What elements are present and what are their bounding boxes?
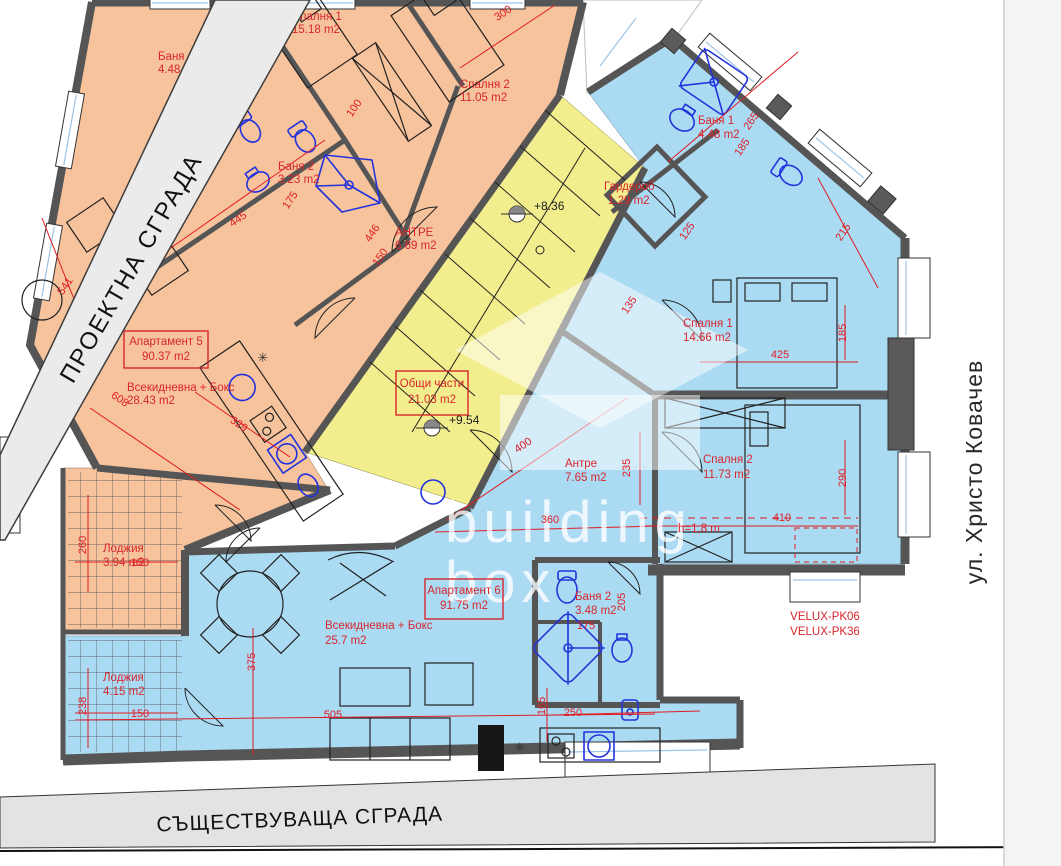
ap5-living-name: Всекидневна + Бокс bbox=[127, 382, 235, 394]
dim-375: 375 bbox=[246, 653, 258, 671]
ap6-lodzhiya-name: Лоджия bbox=[103, 672, 144, 684]
elevation-lower: +9.54 bbox=[449, 413, 480, 427]
street-strip: ул. Христо Ковачев bbox=[961, 0, 1061, 866]
ap6-spalnya1-area: 14.66 m2 bbox=[683, 332, 731, 344]
dim-165: 165 bbox=[536, 697, 548, 715]
ap6-antre-area: 7.65 m2 bbox=[565, 472, 607, 484]
velux-note-1: VELUX-PK06 bbox=[790, 611, 860, 623]
ap6-lodzhiya-area: 4.15 m2 bbox=[103, 686, 145, 698]
ap6-banya2-area: 3.48 m2 bbox=[575, 605, 617, 617]
ap6-spalnya2-name: Спалня 2 bbox=[703, 454, 753, 466]
ap6-banya1-name: Баня 1 bbox=[698, 115, 734, 127]
ap6-spalnya2-area: 11.73 m2 bbox=[703, 469, 750, 481]
street-margin bbox=[1004, 0, 1061, 866]
ap6-garderob-area: 1.29 m2 bbox=[608, 195, 650, 207]
floor-plan-page: ✳ bbox=[0, 0, 1061, 866]
dim-238: 238 bbox=[77, 697, 89, 715]
ap5-id-area: 90.37 m2 bbox=[142, 351, 190, 363]
common-area-area: 21.03 m2 bbox=[408, 394, 456, 406]
kitchen-cabinet bbox=[478, 725, 504, 771]
dim-205: 205 bbox=[616, 593, 628, 611]
dim-250: 250 bbox=[564, 707, 582, 719]
street-label: ул. Христо Ковачев bbox=[961, 360, 987, 585]
attic-height-note: h=1,8 m bbox=[678, 523, 720, 535]
ap5-spalnya2-area: 11.05 m2 bbox=[460, 92, 507, 104]
ap5-lodzhiya-name: Лоджия bbox=[103, 543, 144, 555]
dim-260: 260 bbox=[77, 536, 89, 554]
ap6-living-area: 25.7 m2 bbox=[325, 635, 367, 647]
fridge-icon: ✳ bbox=[258, 350, 269, 365]
ap5-antre-name: АНТРЕ bbox=[395, 227, 434, 239]
dim-150-loggia5: 150 bbox=[131, 557, 149, 569]
dim-235: 235 bbox=[621, 459, 633, 477]
ap6-banya2-name: Баня 2 bbox=[575, 591, 611, 603]
ap5-spalnya2-name: Спалня 2 bbox=[460, 79, 510, 91]
ap6-banya1-area: 4.48 m2 bbox=[698, 129, 740, 141]
dim-185-right: 185 bbox=[837, 324, 849, 342]
elevation-upper: +8.36 bbox=[534, 199, 565, 213]
dim-410: 410 bbox=[773, 512, 791, 524]
velux-roof-window bbox=[790, 572, 860, 602]
ap6-antre-name: Антре bbox=[565, 458, 597, 470]
ap6-spalnya1-name: Спалня 1 bbox=[683, 318, 733, 330]
dim-175-banya2: 175 bbox=[577, 620, 595, 632]
ap6-id-name: Апартамент 6 bbox=[427, 585, 500, 597]
watermark-line1: building bbox=[445, 490, 693, 555]
dim-290: 290 bbox=[837, 469, 849, 487]
ap5-id-name: Апартамент 5 bbox=[129, 336, 202, 348]
dim-150-loggia6: 150 bbox=[131, 708, 149, 720]
ap5-antre-area: 6.69 m2 bbox=[395, 240, 437, 252]
existing-building-band: СЪЩЕСТВУВАЩА СГРАДА bbox=[0, 764, 1055, 851]
right-wall-pier bbox=[888, 338, 914, 450]
watermark-house-body bbox=[500, 395, 700, 470]
ap5-spalnya1-area: 15.18 m2 bbox=[292, 24, 340, 36]
ap5-banya2-name: Баня 2 bbox=[278, 161, 314, 173]
dim-360: 360 bbox=[541, 514, 559, 526]
dim-505: 505 bbox=[324, 709, 342, 721]
freezer-icon: ✳ bbox=[515, 740, 526, 755]
dim-425: 425 bbox=[771, 349, 789, 361]
velux-note-2: VELUX-PK36 bbox=[790, 626, 860, 638]
floor-plan-drawing: ✳ bbox=[0, 0, 1061, 866]
ap6-garderob-name: Гардероб bbox=[604, 181, 655, 193]
ap5-banya2-area: 3.23 m2 bbox=[278, 174, 320, 186]
ap6-id-area: 91.75 m2 bbox=[440, 600, 488, 612]
common-area-name: Общи части bbox=[400, 378, 464, 390]
ap5-living-area: 28.43 m2 bbox=[127, 395, 175, 407]
ap6-living-name: Всекидневна + Бокс bbox=[325, 620, 433, 632]
